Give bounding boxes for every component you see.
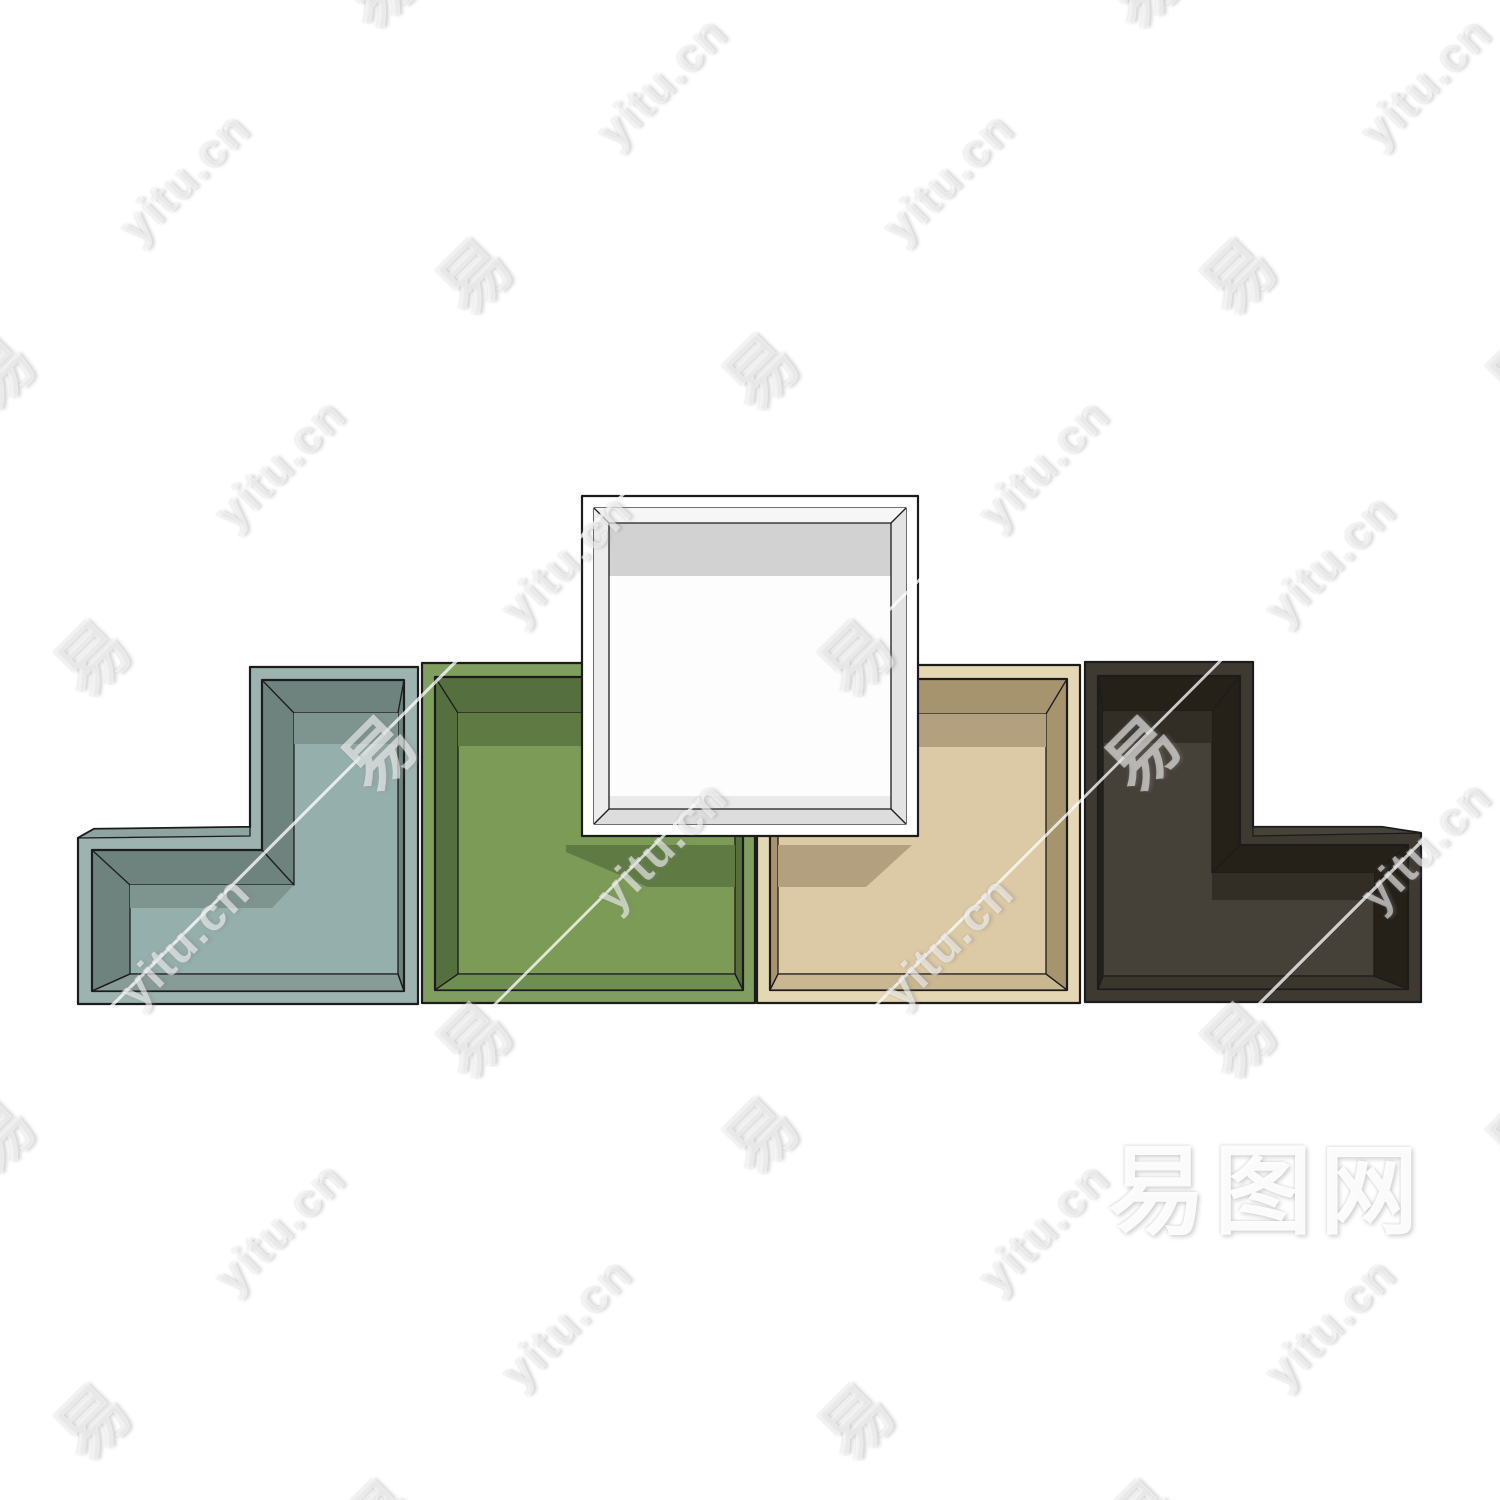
green-shelf-floor	[435, 974, 743, 990]
white-shelf-bevel-top	[594, 508, 906, 523]
teal-shelf-floor	[92, 974, 404, 991]
dark-shelf-foot-shadow	[1212, 873, 1374, 900]
white-shelf-bevel-right	[891, 508, 906, 824]
teal-shelf-top-shadow	[294, 713, 398, 744]
white-shelf-floor	[609, 796, 891, 809]
beige-shelf-floor	[770, 974, 1067, 990]
white-shelf-bevel-bottom	[594, 809, 906, 824]
teal-shelf-foot-top-face	[78, 827, 250, 838]
white-shelf-bevel-left	[594, 508, 609, 824]
teal-shelf-foot-shadow	[130, 885, 294, 908]
white-shelf-back-panel	[609, 576, 891, 796]
white-shelf-top-wall	[609, 523, 891, 576]
dark-l-shelf	[1085, 662, 1421, 1002]
white-cube-shelf	[582, 496, 918, 836]
dark-shelf-top-shadow	[1103, 711, 1212, 743]
dark-shelf-floor	[1098, 976, 1408, 989]
product-render-canvas: 易yitu.cn易yitu.cn易yitu.cn易yitu.cn易yitu.cn…	[0, 0, 1500, 1500]
modular-shelves-illustration	[0, 0, 1500, 1500]
teal-l-shelf	[78, 667, 418, 1004]
